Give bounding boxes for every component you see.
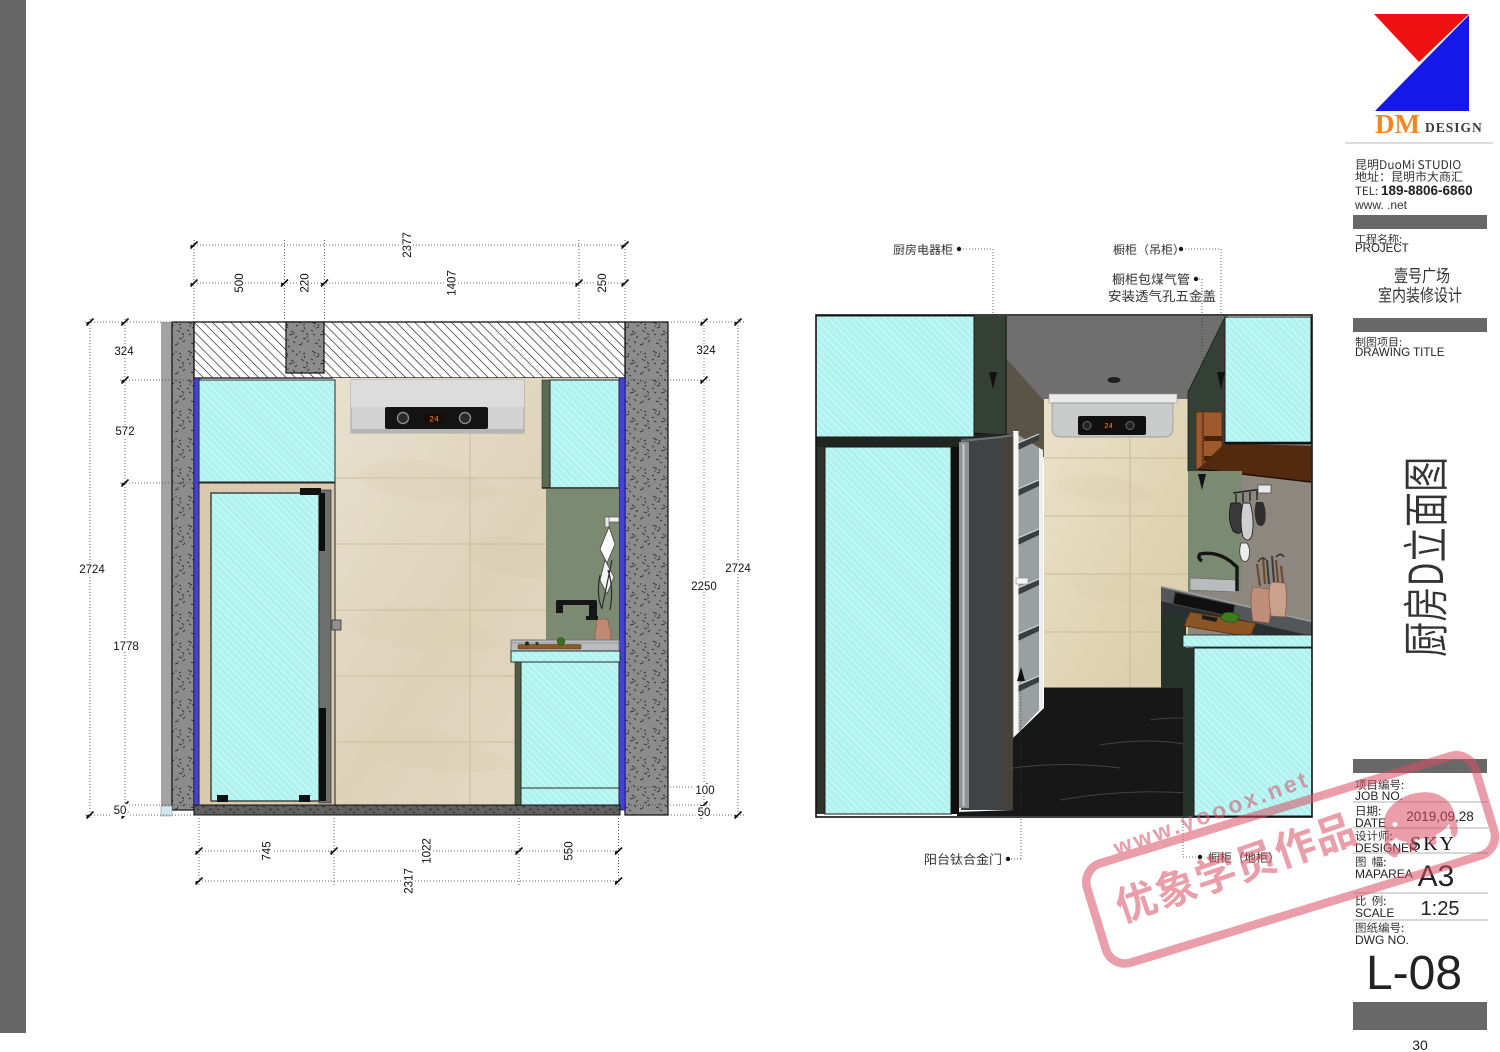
svg-text:2724: 2724 [79, 564, 105, 576]
svg-text:1407: 1407 [447, 270, 459, 296]
svg-text:220: 220 [300, 273, 312, 292]
svg-text:JOB NO.: JOB NO. [1355, 789, 1403, 803]
svg-text:745: 745 [262, 841, 274, 860]
svg-text:1778: 1778 [113, 641, 139, 653]
svg-text:SCALE: SCALE [1355, 906, 1394, 920]
svg-text:1:25: 1:25 [1421, 898, 1460, 920]
svg-text:324: 324 [114, 346, 134, 358]
svg-text:1022: 1022 [422, 838, 434, 864]
svg-text:324: 324 [696, 345, 716, 357]
svg-text:www. .net: www. .net [1354, 198, 1408, 212]
svg-text:189-8806-6860: 189-8806-6860 [1381, 183, 1473, 198]
svg-text:2250: 2250 [691, 581, 717, 593]
svg-text:100: 100 [695, 785, 714, 797]
svg-text:DRAWING TITLE: DRAWING TITLE [1355, 347, 1445, 359]
svg-text:30: 30 [1412, 1037, 1428, 1052]
svg-text:572: 572 [115, 426, 134, 438]
svg-text:550: 550 [564, 841, 576, 860]
svg-text:250: 250 [597, 273, 609, 292]
svg-text:50: 50 [114, 805, 127, 817]
svg-text:24: 24 [429, 416, 439, 425]
svg-text:2724: 2724 [725, 563, 751, 575]
svg-text:L-08: L-08 [1366, 947, 1462, 1000]
svg-text:500: 500 [234, 273, 246, 292]
svg-text:DWG NO.: DWG NO. [1355, 933, 1409, 947]
svg-text:2377: 2377 [402, 232, 414, 258]
svg-text:DESIGN: DESIGN [1425, 120, 1483, 135]
svg-text:50: 50 [698, 807, 711, 819]
svg-text:PROJECT: PROJECT [1355, 243, 1409, 255]
svg-text:24: 24 [1104, 423, 1112, 431]
svg-text:DM: DM [1375, 109, 1420, 139]
svg-text:2317: 2317 [404, 868, 416, 894]
